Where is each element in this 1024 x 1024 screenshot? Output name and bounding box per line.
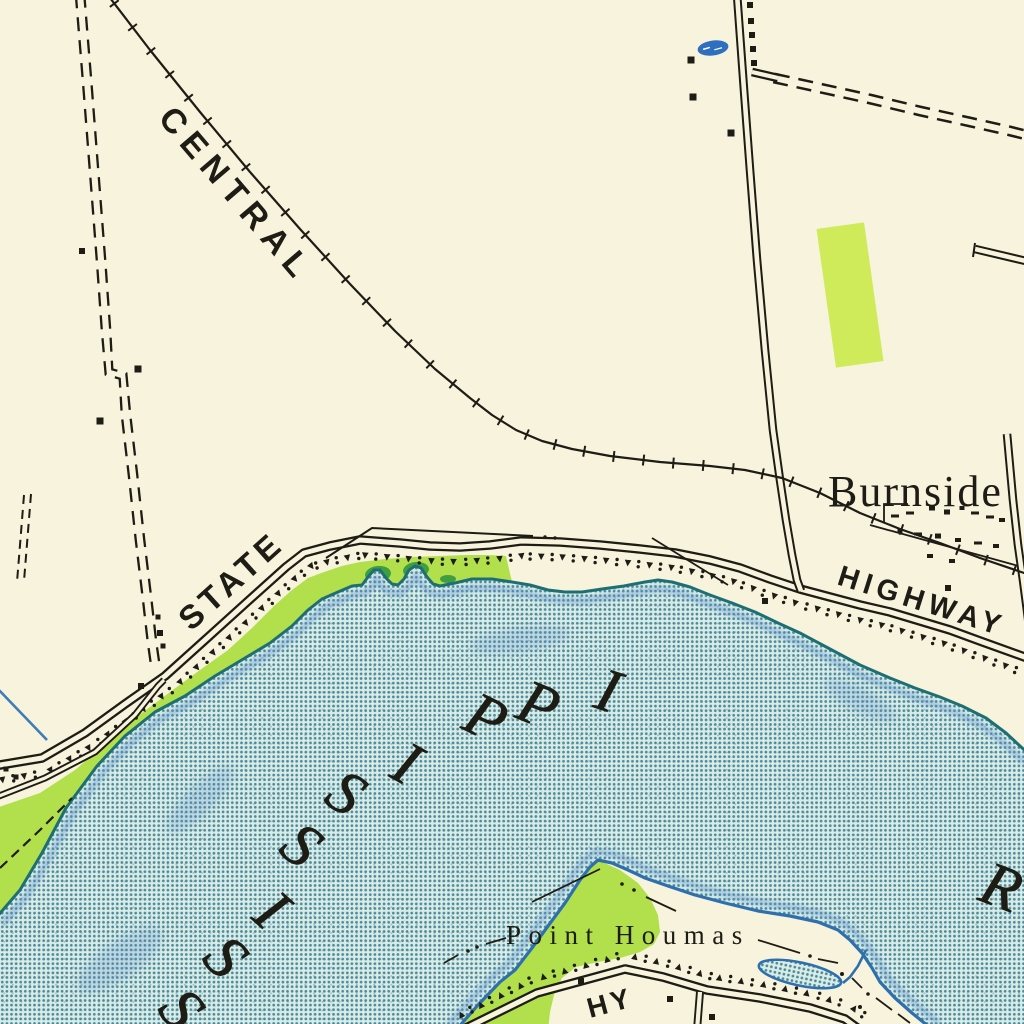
svg-text:Point Houmas: Point Houmas: [506, 920, 750, 950]
svg-text:Burnside: Burnside: [828, 467, 1003, 516]
